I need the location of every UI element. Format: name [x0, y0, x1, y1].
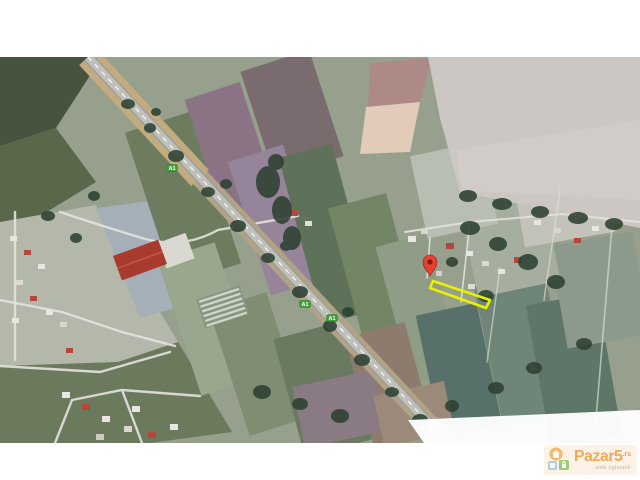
- satellite-map[interactable]: A1A1A1: [0, 0, 640, 480]
- listing-photo-canvas: A1A1A1 Pazar5 .rs web oglasnik: [0, 0, 640, 480]
- route-shield: A1: [300, 301, 311, 309]
- route-shield: A1: [167, 165, 178, 173]
- pazar5-watermark: Pazar5 .rs web oglasnik: [544, 445, 637, 475]
- watermark-tagline: web oglasnik: [574, 466, 631, 472]
- svg-text:A1: A1: [328, 316, 335, 322]
- svg-text:A1: A1: [301, 302, 308, 308]
- pazar5-logo-icon: [547, 447, 571, 473]
- watermark-tld: .rs: [622, 451, 631, 458]
- watermark-brand: Pazar5: [574, 449, 623, 465]
- route-shield: A1: [327, 315, 338, 323]
- svg-text:A1: A1: [168, 166, 175, 172]
